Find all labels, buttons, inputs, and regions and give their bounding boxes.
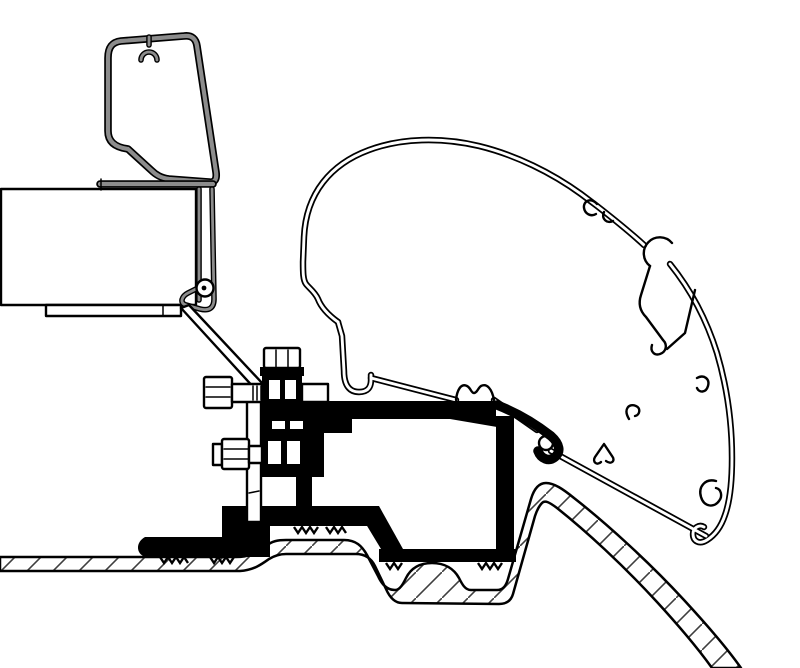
bracket-top-bar [261,401,496,419]
rail-strut-up-hook [627,405,640,419]
rail-claw-hooks [456,385,494,400]
rail-c-clip-lower [700,480,721,505]
hex-bolt-vertical [264,348,300,368]
serration-teeth-arm-1 [294,527,318,533]
bolt-lower-head [222,439,249,469]
cassette-bottom-lip [46,305,181,316]
rail-inner-hook-1 [651,340,665,354]
bracket-center-column [296,477,312,506]
bracket-left-foot [138,537,245,556]
bolt-lower-shank [249,446,262,463]
bolt-upper-shank-right [302,384,328,402]
awning-cassette [1,189,196,316]
end-cap-fastener-socket [202,286,207,291]
rail-outer-wall-core [303,140,732,542]
serration-teeth-bottom-1 [386,563,402,569]
cap-profile-wall-core [108,36,216,182]
bolt-lower-washer [213,444,222,465]
rail-c-clip-large [644,237,672,266]
bracket-top-bar-wedge [450,419,497,427]
rail-strut-y-hook [594,444,613,464]
bracket-slot-3 [272,421,285,429]
awning-adapter-cross-section [0,0,800,668]
bolt-upper-head [204,377,232,408]
rail-bottom-left-core [371,378,456,400]
rail-outer-wall [303,140,732,542]
awning-rail-profile [303,140,732,542]
bracket-right-column [496,416,514,549]
rail-inner-hook-2 [697,377,708,392]
cassette-body [1,189,196,305]
serration-teeth-bottom-2 [478,563,502,569]
bracket-right-diagonal [355,506,403,549]
bracket-slot-1 [269,380,280,399]
bolt-vertical-head [264,348,300,368]
bracket-slot-6 [287,441,300,464]
diagram-canvas [0,0,800,668]
bracket-slot-4 [290,421,303,429]
bracket-slot-5 [268,441,281,464]
rail-inner-web-1 [640,266,663,340]
bracket-slot-2 [285,380,296,399]
bracket-bottom-bar [379,549,516,562]
serration-teeth-arm-2 [326,527,346,533]
